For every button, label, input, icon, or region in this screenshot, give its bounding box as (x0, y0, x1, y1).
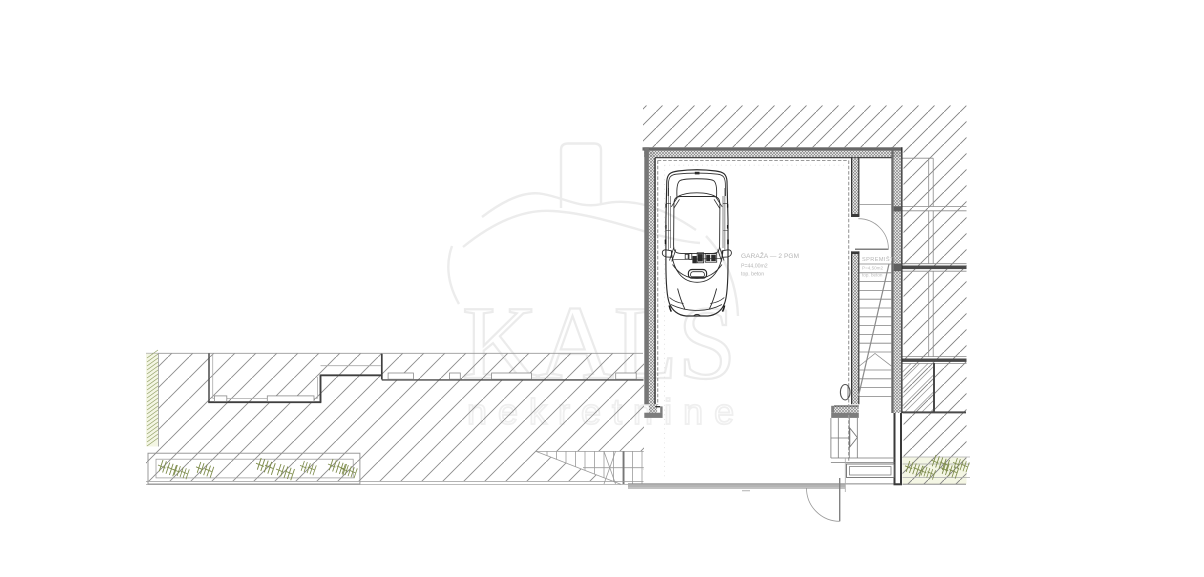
svg-text:P=4,50m2: P=4,50m2 (862, 266, 884, 271)
svg-text:GARAŽA — 2 PGM: GARAŽA — 2 PGM (741, 251, 799, 260)
svg-text:P=44,00m2: P=44,00m2 (741, 264, 768, 270)
svg-text:top. beton: top. beton (862, 273, 883, 278)
svg-text:SPREMIŠTE: SPREMIŠTE (862, 256, 898, 263)
svg-text:top. beton: top. beton (741, 272, 764, 278)
